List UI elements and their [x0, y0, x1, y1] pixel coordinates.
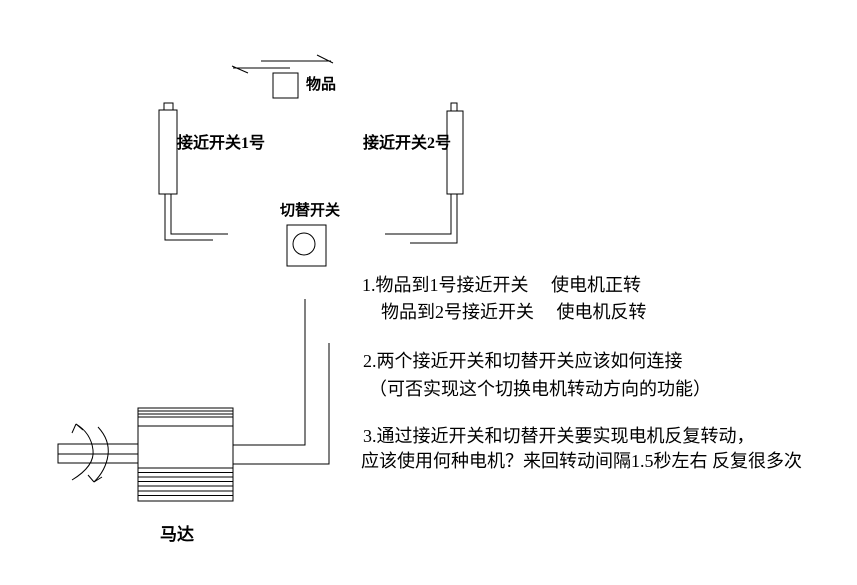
proximity-switch-1-label: 接近开关1号: [177, 135, 265, 153]
toggle-switch: [287, 225, 326, 266]
rotation-arrows-icon: [72, 424, 108, 482]
movement-arrow-icon: [232, 55, 333, 73]
note-item1-line1: 1.物品到1号接近开关 使电机正转: [362, 276, 641, 296]
object-label: 物品: [306, 77, 336, 94]
note-item1-line2: 物品到2号接近开关 使电机反转: [381, 303, 647, 323]
toggle-switch-label: 切替开关: [280, 203, 340, 220]
motor-wires: [233, 299, 329, 464]
schematic-canvas: 物品 接近开关1号 接近开关2号 切替开关 马达 1.物品到1号接近开关 使电机…: [0, 0, 857, 585]
proximity-switch-2-label: 接近开关2号: [363, 135, 451, 153]
note-item2-line2: （可否实现这个切换电机转动方向的功能）: [369, 380, 711, 400]
proximity-switch-2: [385, 103, 463, 243]
motor-label: 马达: [160, 526, 194, 545]
proximity-switch-1: [159, 103, 228, 240]
note-item2-line1: 2.两个接近开关和切替开关应该如何连接: [363, 352, 683, 372]
note-item3-line2: 应该使用何种电机？来回转动间隔1.5秒左右 反复很多次: [361, 452, 802, 472]
note-item3-line1: 3.通过接近开关和切替开关要实现电机反复转动，: [363, 427, 755, 447]
object-box: [273, 73, 298, 98]
motor: [58, 408, 233, 501]
